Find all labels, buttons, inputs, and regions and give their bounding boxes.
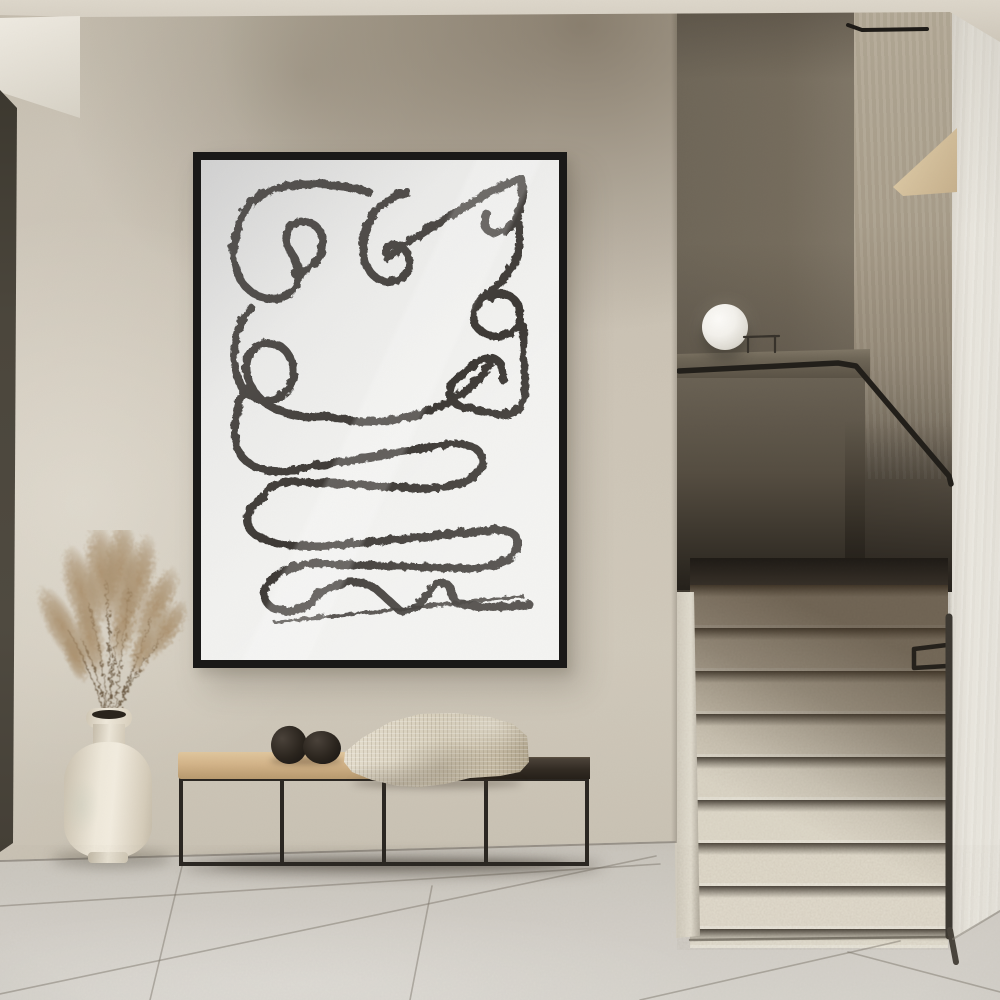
grain-overlay	[0, 0, 1000, 1000]
interior-scene	[0, 0, 1000, 1000]
